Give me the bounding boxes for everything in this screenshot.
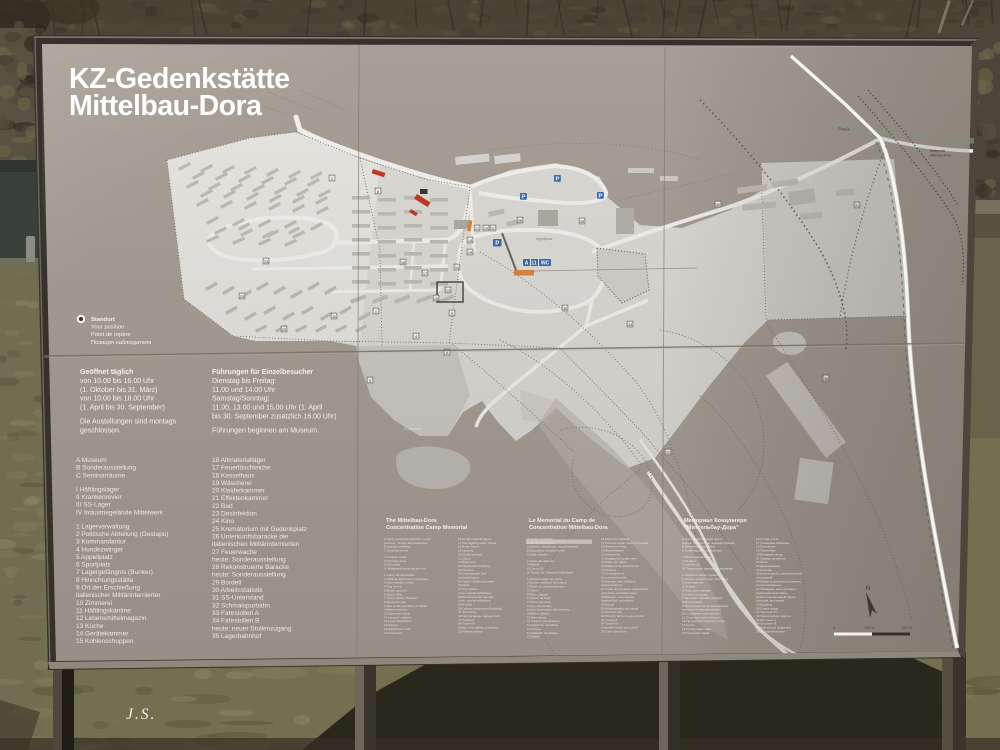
svg-text:1 Lagerverwaltung: 1 Lagerverwaltung: [76, 523, 130, 530]
svg-text:italienischen Militärinternier: italienischen Militärinternierten: [212, 541, 300, 548]
svg-text:J.S.: J.S.: [126, 706, 156, 723]
svg-text:IV Mittelwerk industrial groun: IV Mittelwerk industrial ground: [384, 567, 426, 571]
svg-text:200 m: 200 m: [902, 626, 912, 630]
svg-text:18 Kesselhaus: 18 Kesselhaus: [212, 472, 255, 479]
svg-text:6 Sportplatz: 6 Sportplatz: [76, 562, 111, 569]
svg-text:20 Kleiderkammer: 20 Kleiderkammer: [212, 488, 266, 495]
svg-text:7 Lagergefängnis (Bunker): 7 Lagergefängnis (Bunker): [76, 569, 153, 576]
svg-text:26 Unterkunftsbaracke der: 26 Unterkunftsbaracke der: [212, 534, 289, 541]
svg-text:15 Dépôt: 15 Dépôt: [527, 635, 540, 639]
svg-text:31 SS-Unterstand: 31 SS-Unterstand: [212, 595, 264, 602]
svg-text:100 m: 100 m: [864, 626, 874, 630]
svg-text:10 Zimmerei: 10 Zimmerei: [76, 600, 112, 607]
svg-text:Standort: Standort: [91, 317, 115, 323]
svg-text:Мемориал Концлагеря: Мемориал Концлагеря: [684, 518, 747, 524]
svg-text:4 Hundezwinger: 4 Hundezwinger: [76, 546, 124, 553]
svg-text:A Museum: A Museum: [76, 457, 107, 464]
svg-text:17 Feuerlöschteiche: 17 Feuerlöschteiche: [212, 465, 271, 472]
svg-text:2 Politische Abteilung (Gestap: 2 Politische Abteilung (Gestapo): [76, 531, 169, 538]
svg-text:9 Ort der Erschießung: 9 Ort der Erschießung: [76, 585, 140, 592]
svg-text:Geöffnet täglich: Geöffnet täglich: [80, 369, 133, 376]
svg-text:“Миттельбау-Дора”: “Миттельбау-Дора”: [684, 524, 739, 531]
svg-text:35 Lagerbahnhof: 35 Lagerbahnhof: [212, 633, 261, 640]
svg-text:12 Lebensmittelmagazin: 12 Lebensmittelmagazin: [76, 615, 147, 622]
svg-text:Point de repère: Point de repère: [91, 332, 131, 338]
svg-text:von 10.00 bis 18.00 Uhr: von 10.00 bis 18.00 Uhr: [80, 396, 155, 403]
svg-text:19 Wäscherei: 19 Wäscherei: [212, 480, 252, 487]
svg-text:25 Krematorium mit Gedenkplatz: 25 Krematorium mit Gedenkplatz: [212, 526, 307, 533]
svg-text:(1. Oktober bis 31. März): (1. Oktober bis 31. März): [80, 387, 157, 394]
svg-text:von 10.00 bis 16.00 Uhr: von 10.00 bis 16.00 Uhr: [80, 378, 155, 385]
svg-text:heute: neuer Stollenzugang: heute: neuer Stollenzugang: [212, 625, 292, 632]
svg-text:C Seminarräume: C Seminarräume: [76, 472, 126, 479]
svg-text:B Sonderausstellung: B Sonderausstellung: [76, 465, 136, 472]
svg-text:Concentration Mittelbau-Dora: Concentration Mittelbau-Dora: [529, 525, 609, 531]
svg-text:Die Austellungen sind montags: Die Austellungen sind montags: [80, 419, 177, 426]
svg-text:Your position: Your position: [91, 325, 124, 331]
svg-text:Позиция наблюдателя: Позиция наблюдателя: [91, 340, 151, 346]
svg-text:27 Feuerwache: 27 Feuerwache: [212, 549, 257, 556]
svg-text:I Häftlingslager: I Häftlingslager: [76, 486, 120, 493]
svg-text:Le Memorial du Camp de: Le Memorial du Camp de: [529, 518, 595, 524]
svg-text:heute: Sonderausstellung: heute: Sonderausstellung: [212, 556, 286, 563]
svg-text:14 Gerätekammer: 14 Gerätekammer: [76, 630, 129, 637]
svg-text:C Seminar rooms: C Seminar rooms: [384, 549, 409, 553]
svg-text:28 Rekonstruierte Baracke: 28 Rekonstruierte Baracke: [212, 564, 289, 571]
svg-text:22 Bad: 22 Bad: [212, 503, 233, 510]
svg-text:3 Kommandantur: 3 Kommandantur: [76, 539, 127, 546]
svg-text:IV Территория завода Миттельве: IV Территория завода Миттельверк: [682, 567, 733, 571]
svg-text:geschlossen.: geschlossen.: [80, 427, 121, 434]
svg-text:N: N: [866, 586, 870, 592]
svg-text:IV Industriegelände Mittelwerk: IV Industriegelände Mittelwerk: [76, 509, 164, 516]
svg-text:29 Bordell: 29 Bordell: [212, 579, 242, 586]
svg-text:II Krankenrevier: II Krankenrevier: [76, 494, 123, 501]
svg-text:heute: Sonderausstellung: heute: Sonderausstellung: [212, 572, 286, 579]
svg-text:13 Küche: 13 Küche: [76, 623, 104, 630]
svg-text:15 Kohlenschuppen: 15 Kohlenschuppen: [76, 638, 134, 645]
svg-text:Führungen für Einzelbesucher: Führungen für Einzelbesucher: [212, 369, 313, 376]
svg-text:24 Kino: 24 Kino: [212, 518, 234, 525]
svg-text:16 Altmaterialläger: 16 Altmaterialläger: [212, 457, 267, 464]
svg-text:Mittelbau-Dora: Mittelbau-Dora: [69, 90, 263, 122]
svg-text:15 Coal shed: 15 Coal shed: [384, 631, 403, 635]
svg-text:35 Gare ferroviaire: 35 Gare ferroviaire: [601, 629, 627, 633]
svg-text:Dienstag bis Freitag:: Dienstag bis Freitag:: [212, 378, 276, 385]
svg-text:30 Arbeitsstatistik: 30 Arbeitsstatistik: [212, 587, 263, 594]
svg-text:8 Hinrichtungsstätte: 8 Hinrichtungsstätte: [76, 577, 134, 584]
svg-text:C Семинарские помещения: C Семинарские помещения: [682, 549, 722, 553]
svg-text:IV Terrain de l'industrie Mitt: IV Terrain de l'industrie Mittelwerk: [527, 570, 574, 574]
svg-text:italienischer Militärinternier: italienischer Militärinternierter: [76, 592, 161, 599]
svg-text:23 Desinfektion: 23 Desinfektion: [212, 511, 257, 518]
svg-text:bis 30. September zusätzlich 1: bis 30. September zusätzlich 16.00 Uhr): [212, 414, 337, 421]
svg-text:35 Railway station: 35 Railway station: [458, 629, 483, 633]
svg-text:11.00, 13.00 und 15.00 Uhr (1.: 11.00, 13.00 und 15.00 Uhr (1. April: [212, 405, 323, 412]
svg-text:III SS-Lager: III SS-Lager: [76, 502, 112, 509]
svg-text:35 Лагерный вокзал: 35 Лагерный вокзал: [756, 629, 785, 633]
svg-text:The Mittelbau-Dora: The Mittelbau-Dora: [386, 518, 438, 524]
svg-text:(1. April bis 30. September): (1. April bis 30. September): [80, 405, 165, 412]
svg-text:Samstag/Sonntag:: Samstag/Sonntag:: [212, 396, 270, 403]
svg-text:5 Appellplatz: 5 Appellplatz: [76, 554, 113, 561]
svg-text:Führungen beginnen am Museum.: Führungen beginnen am Museum.: [212, 428, 319, 435]
svg-text:34 Fahrstollen B: 34 Fahrstollen B: [212, 618, 259, 625]
svg-text:11.00 und 14.00 Uhr: 11.00 und 14.00 Uhr: [212, 387, 276, 394]
svg-text:11 Häftlingskantine: 11 Häftlingskantine: [76, 608, 131, 615]
svg-text:C Salle d'étude: C Salle d'étude: [527, 552, 548, 556]
svg-text:33 Fahrstollen A: 33 Fahrstollen A: [212, 610, 260, 617]
svg-text:Concentration Camp Memorial: Concentration Camp Memorial: [386, 525, 468, 531]
svg-text:15 Угольный сарай: 15 Угольный сарай: [682, 631, 709, 635]
svg-text:0: 0: [833, 626, 835, 630]
svg-text:32 Schmalspurbahn: 32 Schmalspurbahn: [212, 602, 270, 609]
svg-text:21 Effektenkammer: 21 Effektenkammer: [212, 495, 269, 502]
